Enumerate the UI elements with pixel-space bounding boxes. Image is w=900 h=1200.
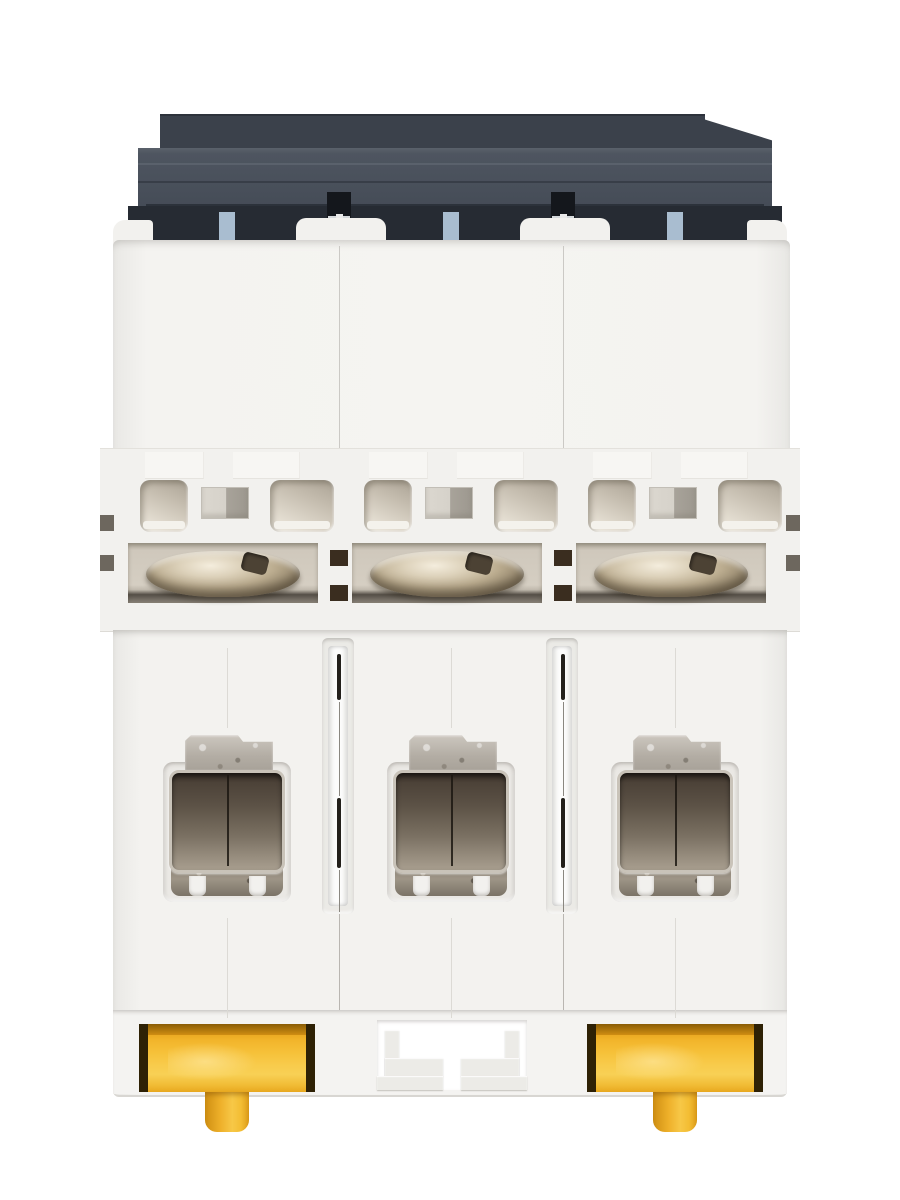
terminal-opening-pole-3	[617, 770, 733, 873]
screw-recess-pole-2	[352, 543, 542, 603]
screw-recess-pole-1	[128, 543, 318, 603]
terminal-opening-pole-1	[169, 770, 285, 873]
top-housing-ridge-highlight	[138, 163, 772, 165]
terminal-foot-left-pole-3	[637, 876, 654, 896]
seam-pin-dark-a-2	[561, 654, 565, 700]
clip-highlight	[616, 1041, 708, 1082]
vent-window-sill	[367, 521, 409, 529]
terminal-foot-left-pole-1	[189, 876, 206, 896]
band-joint-hole-upper-2	[554, 550, 572, 566]
din-slot-right-ledge	[461, 1058, 519, 1076]
vent-window-sill	[722, 521, 778, 529]
vent-window-right-pole-3	[718, 480, 782, 532]
vent-window-sill	[591, 521, 633, 529]
product-photo-canvas	[0, 0, 900, 1200]
terminal-screw-pole-3	[594, 551, 748, 597]
band-step-a-pole-2	[369, 452, 428, 479]
vent-window-left-pole-3	[588, 480, 636, 532]
band-step-b-pole-3	[681, 452, 748, 479]
terminal-foot-right-pole-1	[249, 876, 266, 896]
band-edge-notch-left-b	[100, 555, 114, 571]
clip-border-left-left	[139, 1024, 148, 1092]
terminal-cage-divider-pole-2	[451, 775, 453, 866]
clip-release-tab-left	[205, 1092, 249, 1132]
upper-body	[113, 240, 790, 450]
mold-line-upper-pole-3	[675, 648, 676, 728]
mold-line-lower-pole-3	[675, 918, 676, 1018]
clip-release-tab-right	[653, 1092, 697, 1132]
band-step-a-pole-3	[593, 452, 652, 479]
center-contact-pole-2	[425, 487, 473, 519]
din-slot-cutout	[377, 1020, 527, 1090]
seam-line-thin-a-1	[339, 702, 340, 796]
latch-window-pole-1	[219, 212, 235, 242]
seam-line-thin-b-2	[563, 870, 564, 912]
clip-top-edge-right	[591, 1024, 759, 1035]
terminal-foot-right-pole-2	[473, 876, 490, 896]
pole-seam-upper-1	[339, 246, 340, 450]
terminal-foot-right-pole-3	[697, 876, 714, 896]
vent-window-sill	[274, 521, 330, 529]
mold-line-upper-pole-1	[227, 648, 228, 728]
band-step-b-pole-2	[457, 452, 524, 479]
mold-line-lower-pole-2	[451, 918, 452, 1018]
clip-border-right-right	[754, 1024, 763, 1092]
center-contact-pole-1	[201, 487, 249, 519]
top-housing-body	[138, 148, 772, 206]
seam-line-thin-a-2	[563, 702, 564, 796]
mold-line-lower-pole-1	[227, 918, 228, 1018]
band-joint-hole-lower-1	[330, 585, 348, 601]
seam-pin-dark-b-1	[337, 798, 341, 868]
seam-pin-dark-b-2	[561, 798, 565, 868]
din-slot-left-ledge	[385, 1058, 443, 1076]
clip-top-edge-left	[143, 1024, 311, 1035]
pole-seam-lower-2	[563, 914, 564, 1010]
terminal-opening-pole-2	[393, 770, 509, 873]
mold-line-upper-pole-2	[451, 648, 452, 728]
latch-window-pole-3	[667, 212, 683, 242]
terminal-foot-left-pole-2	[413, 876, 430, 896]
center-contact-pole-3	[649, 487, 697, 519]
vent-window-sill	[143, 521, 185, 529]
pole-seam-lower-1	[339, 914, 340, 1010]
screw-slot-pole-1	[240, 551, 270, 576]
terminal-screw-pole-1	[146, 551, 300, 597]
terminal-screw-pole-2	[370, 551, 524, 597]
clip-border-left-right	[587, 1024, 596, 1092]
vent-window-right-pole-2	[494, 480, 558, 532]
seam-pin-dark-a-1	[337, 654, 341, 700]
latch-window-pole-2	[443, 212, 459, 242]
band-step-a-pole-1	[145, 452, 204, 479]
band-edge-notch-right-b	[786, 555, 800, 571]
seam-line-thin-b-1	[339, 870, 340, 912]
pole-seam-upper-2	[563, 246, 564, 450]
clip-border-right-left	[306, 1024, 315, 1092]
din-slot-bottom-left	[377, 1076, 443, 1090]
vent-window-left-pole-1	[140, 480, 188, 532]
band-edge-notch-left-a	[100, 515, 114, 531]
vent-window-right-pole-1	[270, 480, 334, 532]
terminal-cage-divider-pole-1	[227, 775, 229, 866]
band-edge-notch-right-a	[786, 515, 800, 531]
screw-slot-pole-3	[688, 551, 718, 576]
top-housing-ridge-groove	[138, 181, 772, 183]
vent-window-left-pole-2	[364, 480, 412, 532]
screw-recess-pole-3	[576, 543, 766, 603]
vent-window-sill	[498, 521, 554, 529]
din-slot-bottom-right	[461, 1076, 527, 1090]
screw-slot-pole-2	[464, 551, 494, 576]
terminal-cage-divider-pole-3	[675, 775, 677, 866]
clip-highlight	[168, 1041, 260, 1082]
band-joint-hole-lower-2	[554, 585, 572, 601]
band-joint-hole-upper-1	[330, 550, 348, 566]
band-step-b-pole-1	[233, 452, 300, 479]
